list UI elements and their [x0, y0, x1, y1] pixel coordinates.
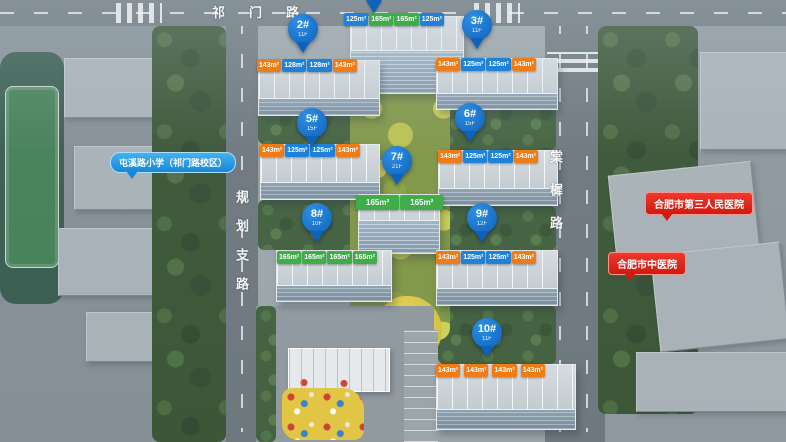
- area-tag: 165m²: [356, 195, 399, 210]
- building-number: 8#: [311, 209, 323, 220]
- area-tag: 165m²: [327, 251, 351, 264]
- building-number: 7#: [391, 152, 403, 163]
- school-building: [86, 312, 154, 362]
- building-number: 5#: [306, 114, 318, 125]
- area-tag: 143m²: [512, 251, 536, 264]
- building-floors: 10F: [312, 221, 322, 227]
- poi-hospital-1-label: 合肥市第三人民医院: [645, 192, 753, 215]
- area-tag: 143m²: [336, 144, 360, 157]
- pin-building-9[interactable]: 9# 12F: [467, 203, 497, 242]
- area-tag: 125m²: [463, 150, 487, 163]
- right-road-lane-line: [586, 26, 588, 442]
- road-label-left: 规划支路: [232, 190, 251, 306]
- kindergarten-playground: [282, 388, 364, 440]
- poi-hospital-1-text: 合肥市第三人民医院: [645, 192, 753, 215]
- pin-tail-icon: [480, 346, 494, 357]
- sports-field: [5, 86, 59, 268]
- pin-building-6[interactable]: 6# 15F: [455, 103, 485, 142]
- pin-tail-icon: [296, 42, 310, 53]
- area-tag: 128m²: [282, 59, 306, 72]
- area-tags-building-3: 143m² 125m² 125m² 143m²: [436, 58, 536, 71]
- bubble-tail-icon: [624, 273, 636, 281]
- area-tag: 143m²: [436, 364, 460, 377]
- pin-head: 8# 10F: [302, 203, 332, 233]
- garden-strip: [256, 306, 276, 442]
- pin-building-10[interactable]: 10# 11F: [472, 318, 502, 357]
- area-tags-building-2: 143m² 128m² 128m² 143m²: [257, 59, 357, 72]
- road-label-right: 棠樨路: [546, 150, 565, 249]
- poi-school-label: 屯溪路小学（祁门路校区）: [110, 152, 236, 173]
- building-floors: 11F: [472, 28, 482, 34]
- area-tag: 125m²: [461, 58, 485, 71]
- poi-school-text: 屯溪路小学（祁门路校区）: [110, 152, 236, 173]
- pin-tail-icon: [390, 174, 404, 185]
- area-tag: 143m²: [512, 58, 536, 71]
- poi-hospital-2-label: 合肥市中医院: [608, 252, 686, 275]
- parking-area: [404, 330, 438, 442]
- pin-building-7[interactable]: 7# 21F: [382, 146, 412, 185]
- area-tag: 125m²: [420, 13, 444, 26]
- area-tag: 165m²: [369, 13, 393, 26]
- pin-head: 3# 11F: [462, 10, 492, 40]
- area-tags-building-1: 125m² 165m² 165m² 125m²: [344, 13, 444, 26]
- pin-tail-icon: [475, 231, 489, 242]
- area-tag: 165m²: [394, 13, 418, 26]
- building-floors: 12F: [477, 221, 487, 227]
- building-number: 6#: [464, 109, 476, 120]
- pin-building-3[interactable]: 3# 11F: [462, 10, 492, 49]
- area-tag: 165m²: [302, 251, 326, 264]
- pin-head: 5# 15F: [297, 108, 327, 138]
- building-floors: 15F: [307, 126, 317, 132]
- pin-tail-icon: [463, 131, 477, 142]
- area-tags-building-6: 143m² 125m² 125m² 143m²: [438, 150, 538, 163]
- area-tag: 143m²: [436, 58, 460, 71]
- area-tag: 165m²: [353, 251, 377, 264]
- pin-building-5[interactable]: 5# 15F: [297, 108, 327, 147]
- building-number: 9#: [476, 209, 488, 220]
- area-tag: 143m²: [464, 364, 488, 377]
- pin-building-8[interactable]: 8# 10F: [302, 203, 332, 242]
- pin-tail-icon: [470, 38, 484, 49]
- garden-strip: [438, 206, 556, 250]
- area-tag: 143m²: [436, 251, 460, 264]
- area-tag: 125m²: [461, 251, 485, 264]
- building-floors: 15F: [465, 121, 475, 127]
- building-floors: 21F: [392, 164, 402, 170]
- crosswalk: [116, 3, 162, 23]
- area-tag: 143m²: [333, 59, 357, 72]
- pin-head: 7# 21F: [382, 146, 412, 176]
- building-floors: 11F: [482, 336, 492, 342]
- school-building: [58, 228, 162, 296]
- site-plan: 祁门路 规划支路 棠樨路 125m² 165m² 165m² 125m² 143…: [0, 0, 786, 442]
- area-tag: 165m²: [400, 195, 443, 210]
- bubble-tail-icon: [126, 171, 138, 179]
- area-tag: 143m²: [514, 150, 538, 163]
- pin-head: 9# 12F: [467, 203, 497, 233]
- building-floors: 11F: [298, 32, 308, 38]
- school-building: [64, 58, 156, 118]
- kindergarten-building: [288, 348, 390, 392]
- area-tags-building-8: 165m² 165m² 165m² 165m²: [277, 251, 377, 264]
- pin-building-1-tip[interactable]: [366, 0, 382, 13]
- poi-hospital-2-text: 合肥市中医院: [608, 252, 686, 275]
- building-number: 2#: [297, 20, 309, 31]
- area-tag: 143m²: [492, 364, 516, 377]
- pin-tail-icon: [305, 136, 319, 147]
- pin-tail-icon: [310, 231, 324, 242]
- area-tag: 125m²: [488, 150, 512, 163]
- pin-head: 6# 15F: [455, 103, 485, 133]
- pin-head: 2# 11F: [288, 14, 318, 44]
- pin-building-2[interactable]: 2# 11F: [288, 14, 318, 53]
- area-tags-building-10: 143m² 143m² 143m² 143m²: [436, 364, 545, 377]
- area-tag: 143m²: [438, 150, 462, 163]
- hospital-building: [636, 352, 786, 412]
- hospital-building: [700, 52, 786, 150]
- area-tag: 125m²: [486, 58, 510, 71]
- bubble-tail-icon: [661, 213, 673, 221]
- area-tag: 125m²: [486, 251, 510, 264]
- building-number: 3#: [471, 16, 483, 27]
- area-tag: 125m²: [344, 13, 368, 26]
- area-tag: 143m²: [257, 59, 281, 72]
- area-tags-building-9: 143m² 125m² 125m² 143m²: [436, 251, 536, 264]
- area-tag: 143m²: [521, 364, 545, 377]
- building-number: 10#: [478, 324, 496, 335]
- area-tag: 165m²: [277, 251, 301, 264]
- area-tag: 128m²: [307, 59, 331, 72]
- pin-head: 10# 11F: [472, 318, 502, 348]
- area-tag: 143m²: [260, 144, 284, 157]
- tree-band-west: [152, 26, 226, 442]
- area-tags-building-7: 165m² 165m²: [356, 195, 443, 210]
